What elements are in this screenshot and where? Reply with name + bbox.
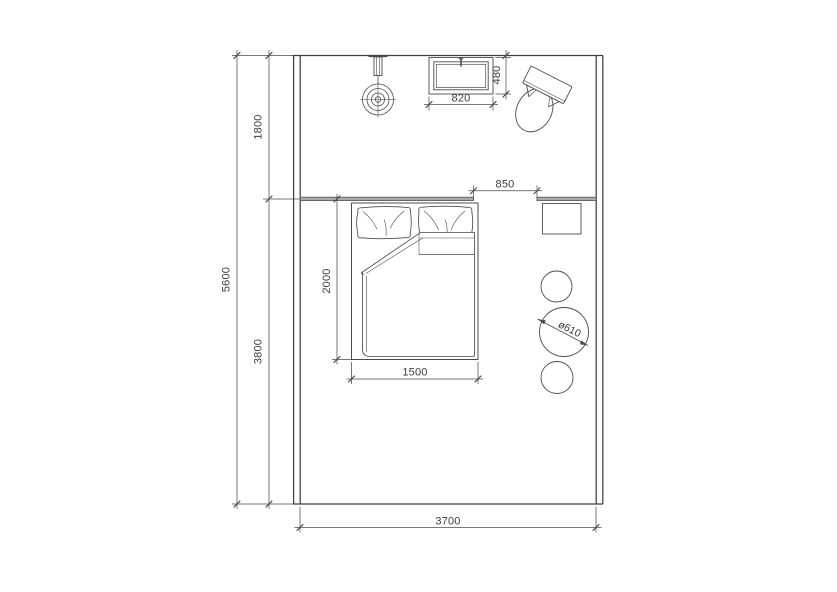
dim-label-room-width: 3700 (435, 516, 460, 528)
nightstand-square (543, 204, 582, 235)
dim-label-bed-width: 1500 (402, 367, 427, 379)
stool-bottom (541, 362, 573, 394)
dim-label-bed-length: 2000 (321, 268, 333, 293)
dim-bed-width: 1500 (347, 362, 484, 384)
floor-plan-drawing: ø610 1800 3800 5600 3700 (0, 0, 837, 592)
dim-door-opening: 850 (469, 179, 543, 200)
partition-wall (300, 197, 596, 200)
dim-label-door-opening: 850 (496, 179, 515, 191)
toilet (504, 66, 572, 141)
dim-chain-outer: 5600 (221, 50, 241, 509)
dim-label-bathroom-depth: 1800 (253, 114, 265, 139)
dim-basin-depth: 480 (491, 50, 511, 100)
dim-label-basin-depth: 480 (491, 66, 503, 85)
pillow-left (357, 207, 412, 239)
partition-right-segment (537, 197, 596, 200)
dim-room-width: 3700 (295, 507, 602, 533)
wash-basin (429, 58, 493, 95)
dim-label-bedroom-depth: 3800 (253, 339, 265, 364)
dim-chain-inner: 1800 3800 (253, 50, 273, 509)
dim-bed-length: 2000 (321, 194, 352, 365)
shower-head-icon (360, 82, 396, 118)
dim-basin-width: 820 (424, 93, 498, 111)
stool-top (541, 271, 572, 302)
dim-label-room-height: 5600 (221, 267, 233, 292)
bed (352, 203, 479, 360)
floor-plan-canvas: ø610 1800 3800 5600 3700 (0, 0, 837, 592)
dim-label-basin-width: 820 (452, 93, 471, 105)
shower-valve-icon (369, 56, 388, 84)
partition-left-segment (300, 197, 473, 200)
